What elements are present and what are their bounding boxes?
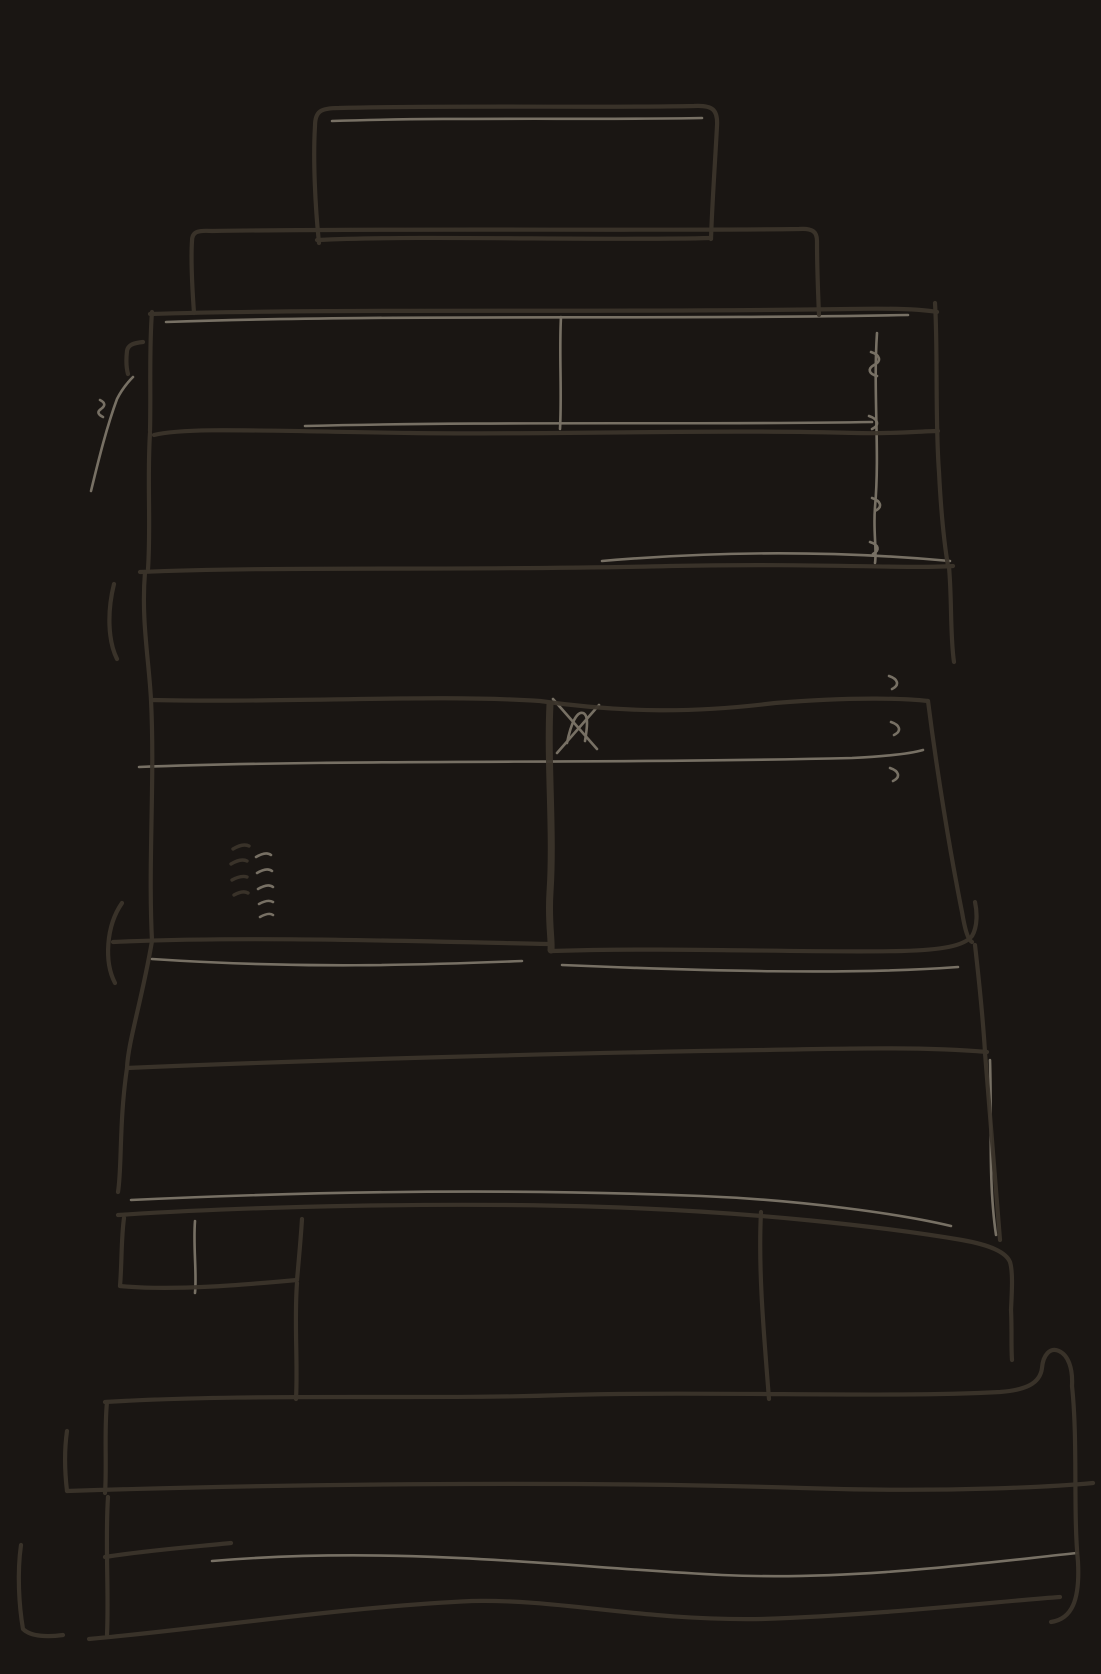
wireframe-strokes — [0, 0, 1101, 1674]
ditto-marks-icon — [231, 845, 249, 895]
header-box — [150, 303, 948, 566]
nav-box — [192, 229, 819, 315]
table-section — [120, 1212, 1012, 1399]
ditto-marks-icon — [256, 853, 273, 917]
main-left-edge — [118, 572, 152, 1192]
bottom-section — [19, 1350, 1093, 1639]
two-column-section — [113, 698, 977, 951]
p1-left-edge — [148, 433, 150, 569]
p-wide-row — [118, 1053, 1012, 1310]
h2-first-row — [109, 342, 954, 662]
pen-strokes — [19, 106, 1093, 1639]
title-box — [314, 106, 717, 243]
notebook-photo: Lab3 wireframe (idealized) Title Subtitl… — [0, 0, 1101, 1674]
